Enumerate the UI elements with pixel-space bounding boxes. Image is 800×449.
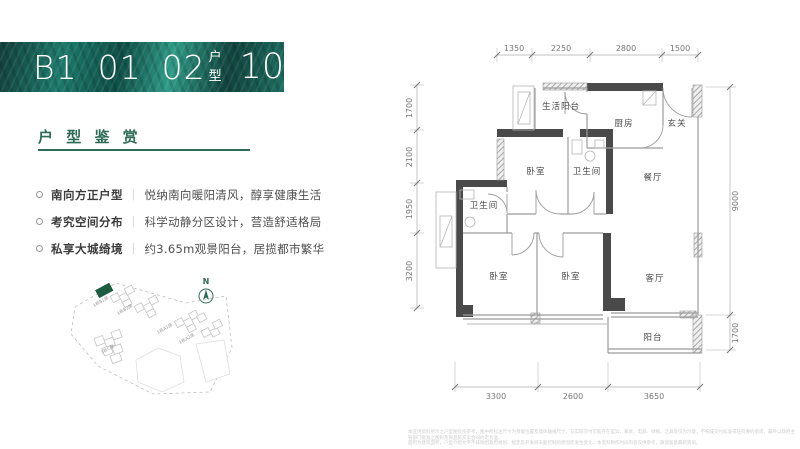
divider-bar — [84, 52, 91, 81]
floor-plan: 生活阳台 厨房 玄关 卧室 卫生间 卫生间 餐厅 卧室 卧室 客厅 阳台 — [400, 0, 800, 449]
feature-item: 南向方正户型 ｜ 悦纳南向暖阳清风，醇享健康生活 — [36, 181, 324, 208]
room-labels: 生活阳台 厨房 玄关 卧室 卫生间 卫生间 餐厅 卧室 卧室 客厅 阳台 — [470, 101, 687, 343]
building-outline — [196, 340, 230, 382]
room-life-balcony: 生活阳台 — [542, 101, 580, 112]
feature-item: 考究空间分布 ｜ 科学动静分区设计，营造舒适格局 — [36, 208, 324, 235]
dim-top: 2800 — [616, 44, 636, 53]
feature-item: 私享大城绮境 ｜ 约3.65m观景阳台，居揽都市繁华 — [36, 235, 324, 262]
dim-top: 2250 — [551, 44, 571, 53]
building-label: 1栋A1座 — [156, 321, 175, 336]
site-plan: N 1栋B1 — [58, 270, 248, 430]
building-label: 1栋A2座 — [178, 331, 197, 346]
room-balcony: 阳台 — [643, 332, 662, 343]
area-value: 105 — [240, 50, 307, 85]
unit-type-label: 户型 — [209, 46, 223, 92]
area-unit: m2 — [307, 72, 327, 85]
dim-top: 1500 — [670, 44, 690, 53]
dim-left: 1700 — [405, 98, 414, 118]
bullet-circle-icon — [36, 191, 43, 198]
dim-right: 1700 — [731, 323, 740, 343]
unit-code: B1 — [33, 51, 78, 84]
bullet-circle-icon — [36, 218, 43, 225]
building-cluster — [134, 295, 163, 321]
disclaimer: 本宣传资料所示之户型图仅作参考，图中所标注尺寸为预留位置及墙体轴线尺寸，与实际交… — [408, 430, 796, 447]
room-bath-left: 卫生间 — [470, 200, 499, 211]
room-living: 客厅 — [645, 273, 664, 284]
building-cluster — [200, 319, 226, 341]
room-bedroom-top: 卧室 — [526, 166, 545, 177]
fixtures — [436, 86, 656, 268]
disclaimer-line: 本宣传资料所示之户型图仅作参考，图中所标注尺寸为预留位置及墙体轴线尺寸，与实际交… — [408, 430, 796, 441]
room-bath-top: 卫生间 — [573, 166, 602, 177]
divider-slash — [148, 52, 155, 81]
bullet-circle-icon — [36, 245, 43, 252]
section-title: 户 型 鉴 赏 — [38, 126, 142, 147]
dim-bottom: 2600 — [563, 392, 583, 401]
svg-text:N: N — [203, 277, 210, 286]
room-bedroom-left: 卧室 — [489, 271, 508, 282]
dimension-labels: 1350 2250 2800 1500 1700 2100 1950 3200 … — [405, 44, 740, 401]
area-unit-stack: 建面约 m2 — [307, 65, 327, 92]
feature-list: 南向方正户型 ｜ 悦纳南向暖阳清风，醇享健康生活 考究空间分布 ｜ 科学动静分区… — [36, 181, 324, 262]
unit-number-2: 02 — [162, 51, 206, 84]
disclaimer-line: 面积为建筑面积，户型介绍文字不排除因政府规划、规定及开发商未能控制的原因而发生变… — [408, 441, 796, 447]
room-bedroom-mid: 卧室 — [561, 271, 580, 282]
dim-bottom: 3650 — [644, 392, 664, 401]
dim-bottom: 3300 — [486, 392, 506, 401]
section-title-underline — [38, 149, 250, 151]
dim-left: 3200 — [405, 261, 414, 281]
dim-left: 1950 — [405, 199, 414, 219]
area-note: 建面约 — [307, 65, 327, 72]
room-dining: 餐厅 — [643, 173, 662, 183]
room-foyer: 玄关 — [667, 118, 686, 129]
dim-top: 1350 — [504, 44, 524, 53]
dim-right: 9000 — [731, 191, 740, 211]
unit-header-banner: B1 01 02 户型 105 建面约 m2 — [0, 42, 284, 92]
walls-thin — [463, 88, 702, 353]
building-outline — [136, 348, 184, 392]
dim-left: 2100 — [405, 147, 414, 167]
unit-number-1: 01 — [98, 51, 142, 84]
room-kitchen: 厨房 — [614, 118, 633, 129]
